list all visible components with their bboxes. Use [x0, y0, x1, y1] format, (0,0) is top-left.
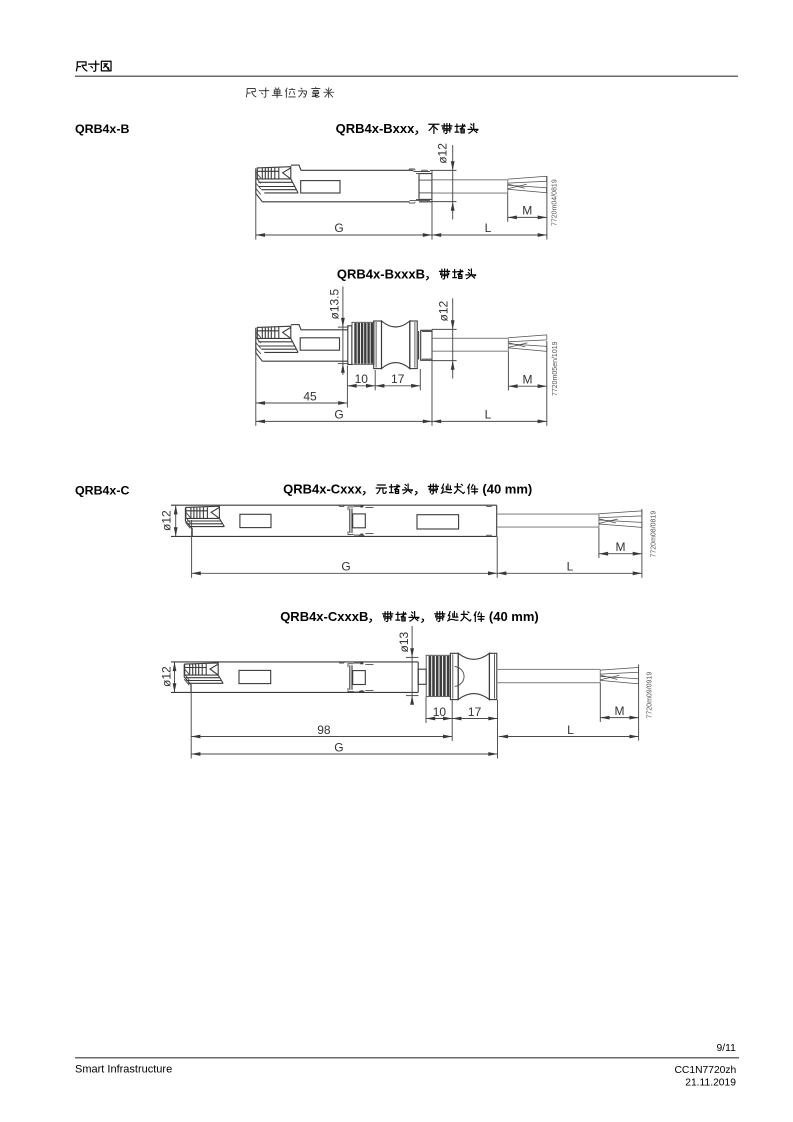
svg-text:98: 98: [317, 723, 331, 737]
svg-text:M: M: [616, 540, 626, 554]
svg-text:17: 17: [391, 372, 405, 386]
svg-text:M: M: [523, 372, 533, 386]
svg-text:17: 17: [468, 705, 482, 719]
svg-text:ø12: ø12: [436, 143, 450, 164]
svg-text:QRB4x-Bxxx: QRB4x-Bxxx: [336, 121, 416, 136]
svg-text:M: M: [615, 704, 625, 718]
svg-text:7720m05en/1019: 7720m05en/1019: [552, 341, 559, 396]
svg-text:Smart Infrastructure: Smart Infrastructure: [75, 1064, 172, 1076]
svg-text:(40 mm): (40 mm): [489, 609, 539, 624]
svg-text:QRB4x-B: QRB4x-B: [75, 122, 129, 136]
svg-text:21.11.2019: 21.11.2019: [685, 1078, 736, 1089]
svg-text:G: G: [334, 741, 343, 755]
svg-text:(40 mm): (40 mm): [482, 482, 532, 497]
svg-text:ø13: ø13: [397, 631, 411, 652]
svg-text:G: G: [334, 221, 343, 235]
svg-text:G: G: [334, 408, 343, 422]
svg-text:10: 10: [433, 705, 447, 719]
svg-text:M: M: [522, 203, 532, 217]
svg-text:ø12: ø12: [160, 510, 174, 531]
svg-text:G: G: [341, 560, 350, 574]
svg-text:7720m09/0919: 7720m09/0919: [647, 672, 654, 719]
svg-text:7720m08/0819: 7720m08/0819: [651, 511, 658, 558]
svg-text:L: L: [485, 221, 492, 235]
svg-text:QRB4x-BxxxB: QRB4x-BxxxB: [337, 267, 425, 282]
svg-text:QRB4x-Cxxx: QRB4x-Cxxx: [283, 482, 363, 497]
svg-text:9/11: 9/11: [717, 1043, 737, 1054]
svg-text:L: L: [567, 560, 574, 574]
svg-text:ø12: ø12: [437, 300, 451, 321]
svg-text:QRB4x-C: QRB4x-C: [75, 484, 129, 498]
svg-text:CC1N7720zh: CC1N7720zh: [674, 1065, 736, 1076]
svg-text:ø12: ø12: [160, 666, 174, 687]
svg-text:ø13.5: ø13.5: [327, 288, 341, 319]
svg-text:L: L: [485, 408, 492, 422]
svg-text:7720m04/0819: 7720m04/0819: [552, 179, 559, 226]
svg-text:10: 10: [355, 372, 369, 386]
svg-text:QRB4x-CxxxB: QRB4x-CxxxB: [280, 609, 368, 624]
svg-text:L: L: [567, 723, 574, 737]
svg-text:45: 45: [303, 389, 317, 403]
